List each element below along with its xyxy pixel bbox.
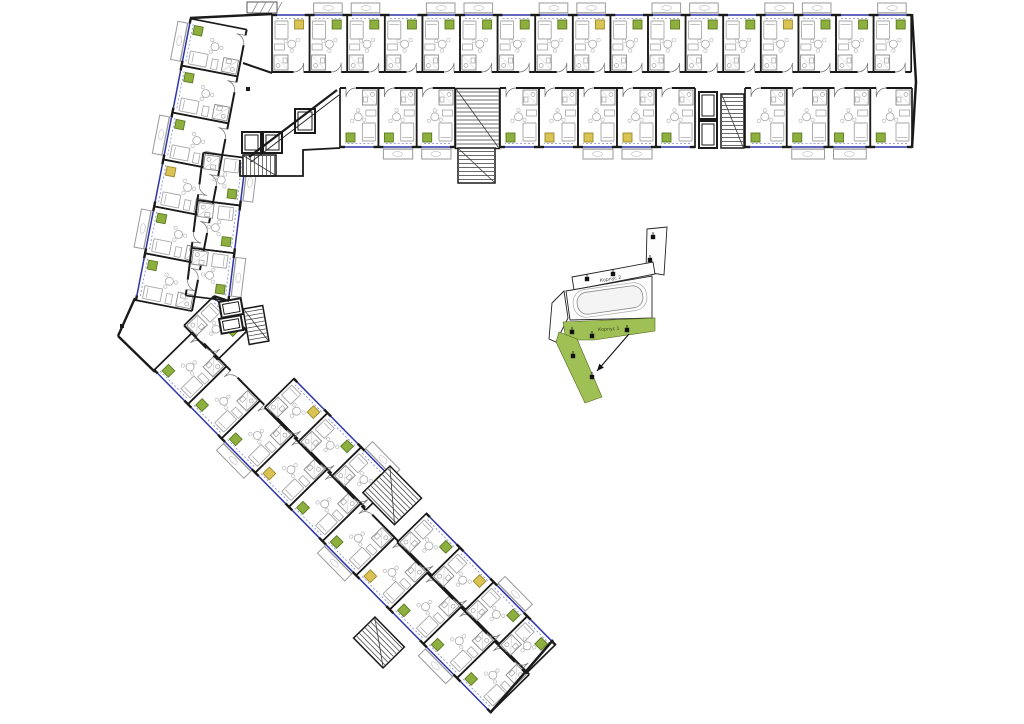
key-plan — [549, 227, 667, 403]
apartment-unit — [535, 3, 573, 72]
top-wing-north-row — [272, 3, 911, 72]
apartment-unit — [340, 88, 378, 148]
key-arrow — [597, 334, 629, 371]
floor-plan-canvas: Корпус 2 Корпус 1 — [0, 0, 1024, 724]
stair-core — [458, 148, 495, 183]
apartment-unit — [648, 3, 686, 72]
apartment-unit — [347, 3, 385, 72]
stair-core — [243, 155, 276, 176]
apartment-unit — [723, 14, 761, 72]
apartment-unit — [272, 14, 310, 72]
apartment-unit — [745, 88, 787, 148]
apartment-unit — [378, 88, 416, 159]
apartment-unit — [761, 3, 799, 72]
apartment-unit — [498, 616, 556, 674]
entrance-canopy — [247, 2, 282, 13]
apartment-unit — [154, 332, 227, 405]
lower-diagonal-outer-row — [146, 332, 530, 721]
apartment-unit — [787, 88, 829, 159]
apartment-unit — [610, 14, 648, 72]
keyplan-building1-label: Корпус 1 — [598, 326, 620, 333]
apartment-unit — [829, 88, 871, 159]
key-arm — [556, 332, 602, 403]
stair-core — [363, 466, 422, 525]
elevator-core — [699, 121, 717, 148]
top-wing-south-row — [340, 88, 912, 159]
apartment-unit — [578, 88, 617, 159]
elevator-core — [699, 92, 717, 119]
apartment-unit — [500, 88, 539, 148]
apartment-unit — [870, 88, 912, 148]
apartment-unit — [385, 14, 423, 72]
floor-plan-svg: Корпус 2 Корпус 1 — [0, 0, 1024, 724]
apartment-unit — [422, 3, 460, 72]
stair-core — [354, 617, 405, 668]
apartment-unit — [192, 200, 242, 253]
apartment-unit — [417, 88, 455, 159]
apartment-unit — [656, 88, 695, 148]
apartment-unit — [798, 3, 836, 72]
stair-core — [456, 89, 500, 149]
apartment-unit — [539, 88, 578, 148]
stair-core — [721, 94, 744, 148]
apartment-unit — [310, 3, 348, 72]
building-plan — [118, 2, 916, 721]
apartment-unit — [686, 3, 724, 72]
apartment-unit — [498, 14, 536, 72]
apartment-unit — [617, 88, 656, 159]
apartment-unit — [460, 3, 498, 72]
stair-core — [243, 306, 269, 345]
apartment-unit — [836, 14, 874, 72]
elevator-core — [219, 315, 243, 334]
apartment-unit — [874, 3, 912, 72]
apartment-unit — [573, 3, 611, 72]
